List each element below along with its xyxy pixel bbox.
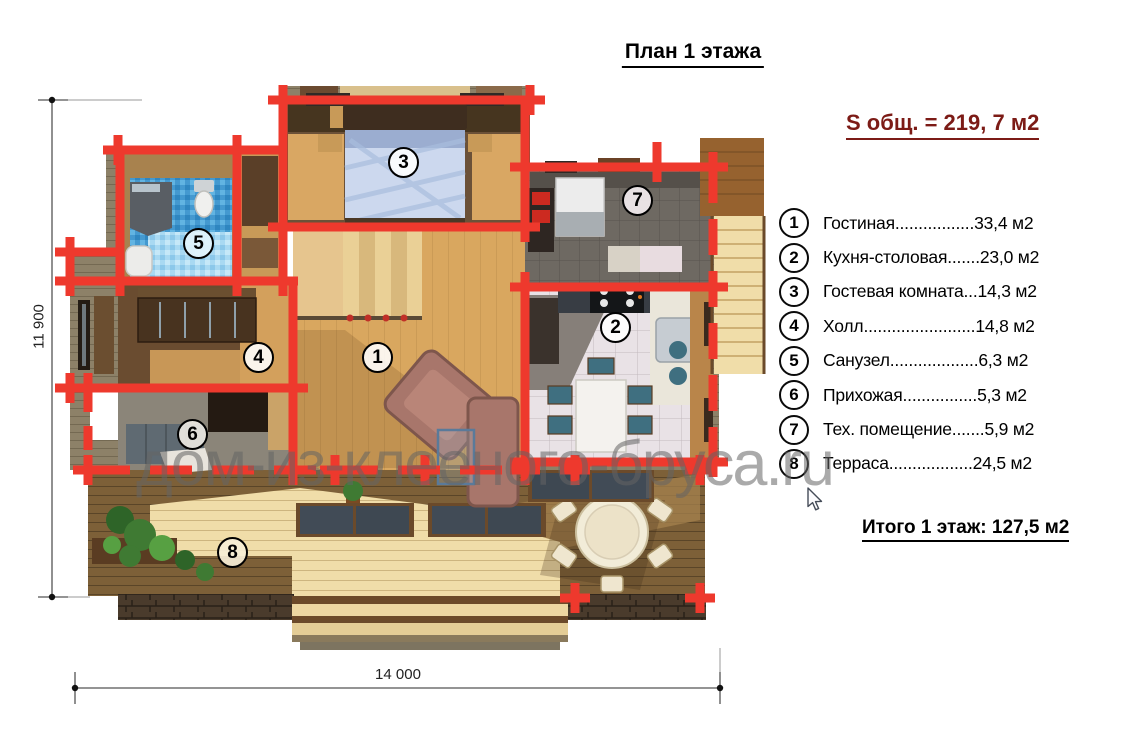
room-marker-5: 5 bbox=[183, 228, 214, 259]
room-marker-8: 8 bbox=[217, 537, 248, 568]
floor-plan-page: План 1 этажа S общ. = 219, 7 м2 1 Гостин… bbox=[0, 0, 1122, 746]
total-area-label: S общ. = 219, 7 м2 bbox=[846, 110, 1039, 140]
room-marker-3: 3 bbox=[388, 147, 419, 178]
page-title: План 1 этажа bbox=[622, 40, 764, 68]
legend-text: Кухня-столовая.......23,0 м2 bbox=[823, 247, 1039, 268]
legend-text: Санузел...................6,3 м2 bbox=[823, 350, 1028, 371]
dimension-height-label: 11 900 bbox=[31, 287, 48, 367]
floor-total-label: Итого 1 этаж: 127,5 м2 bbox=[862, 517, 1069, 542]
legend-row: 5 Санузел...................6,3 м2 bbox=[779, 344, 1039, 378]
legend-text: Гостиная.................33,4 м2 bbox=[823, 213, 1033, 234]
legend-number-badge: 2 bbox=[779, 243, 809, 273]
legend-text: Терраса..................24,5 м2 bbox=[823, 453, 1032, 474]
legend-number-badge: 1 bbox=[779, 208, 809, 238]
room-marker-7: 7 bbox=[622, 185, 653, 216]
legend-row: 4 Холл........................14,8 м2 bbox=[779, 309, 1039, 343]
legend-text: Прихожая................5,3 м2 bbox=[823, 385, 1027, 406]
legend-text: Тех. помещение.......5,9 м2 bbox=[823, 419, 1034, 440]
staircase bbox=[293, 227, 422, 322]
legend-row: 3 Гостевая комната...14,3 м2 bbox=[779, 275, 1039, 309]
legend-number-badge: 3 bbox=[779, 277, 809, 307]
legend-row: 6 Прихожая................5,3 м2 bbox=[779, 378, 1039, 412]
legend-row: 1 Гостиная.................33,4 м2 bbox=[779, 206, 1039, 240]
legend-number-badge: 4 bbox=[779, 311, 809, 341]
room-utility bbox=[525, 158, 713, 287]
dimension-width-label: 14 000 bbox=[358, 666, 438, 683]
room-hall bbox=[118, 281, 293, 388]
room-marker-4: 4 bbox=[243, 342, 274, 373]
watermark-text: дом-из-клееного-бруса.ru bbox=[136, 428, 833, 500]
closet-corridor bbox=[237, 150, 283, 281]
room-marker-1: 1 bbox=[362, 342, 393, 373]
room-marker-2: 2 bbox=[600, 312, 631, 343]
room-bathroom bbox=[122, 150, 237, 281]
legend-text: Гостевая комната...14,3 м2 bbox=[823, 281, 1037, 302]
bay-window bbox=[70, 281, 118, 388]
legend-number-badge: 5 bbox=[779, 346, 809, 376]
legend-number-badge: 6 bbox=[779, 380, 809, 410]
legend-row: 2 Кухня-столовая.......23,0 м2 bbox=[779, 240, 1039, 274]
mouse-cursor-icon bbox=[806, 487, 828, 513]
legend-text: Холл........................14,8 м2 bbox=[823, 316, 1035, 337]
